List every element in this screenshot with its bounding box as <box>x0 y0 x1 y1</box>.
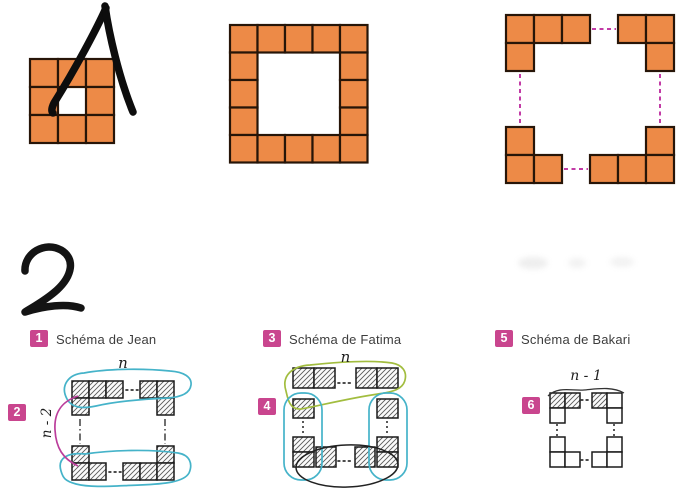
hatched-square <box>550 393 565 408</box>
schema-jean-title: Schéma de Jean <box>56 332 156 347</box>
hatched-square <box>140 463 157 480</box>
worksheet-page: 1 Schéma de Jean 2 n n - 2 3 Schéma de F… <box>0 0 682 492</box>
orange-square <box>58 115 86 143</box>
hatched-square <box>157 398 174 415</box>
jean-n-minus-2-label: n - 2 <box>39 396 55 450</box>
orange-square <box>313 25 341 53</box>
orange-square <box>618 155 646 183</box>
hatched-square <box>72 381 89 398</box>
orange-square <box>313 135 341 163</box>
handwritten-part-2 <box>25 247 81 312</box>
hatched-square <box>89 381 106 398</box>
hatched-square <box>377 399 398 418</box>
orange-square <box>534 15 562 43</box>
orange-square <box>86 59 114 87</box>
badge-3: 3 <box>263 330 281 347</box>
orange-square <box>646 155 674 183</box>
hatched-square <box>157 446 174 463</box>
orange-square <box>258 135 286 163</box>
orange-square <box>258 25 286 53</box>
hatched-square <box>316 447 336 467</box>
badge-2: 2 <box>8 404 26 421</box>
orange-square <box>86 115 114 143</box>
badge-4: 4 <box>258 398 276 415</box>
hatched-square <box>377 452 398 467</box>
schema-fatima-title: Schéma de Fatima <box>289 332 401 347</box>
orange-square <box>506 155 534 183</box>
hatched-square <box>140 381 157 398</box>
orange-square <box>562 15 590 43</box>
smudge <box>518 257 548 269</box>
orange-square <box>230 108 258 136</box>
orange-square <box>230 53 258 81</box>
hatched-square <box>377 368 398 388</box>
hatched-square <box>592 393 607 408</box>
hatched-square <box>356 368 377 388</box>
orange-square <box>506 127 534 155</box>
orange-square <box>285 135 313 163</box>
smudge <box>568 258 586 268</box>
orange-square <box>340 25 368 53</box>
orange-square <box>590 155 618 183</box>
badge-6: 6 <box>522 397 540 414</box>
badge-1: 1 <box>30 330 48 347</box>
hatched-square <box>355 447 375 467</box>
hatched-square <box>72 463 89 480</box>
orange-square <box>646 43 674 71</box>
hatched-square <box>293 368 314 388</box>
smudge <box>610 257 634 267</box>
orange-square <box>340 108 368 136</box>
worksheet-art <box>0 0 682 492</box>
hatched-square <box>106 381 123 398</box>
orange-square <box>340 80 368 108</box>
orange-square <box>30 115 58 143</box>
hatched-square <box>565 393 580 408</box>
orange-square <box>340 135 368 163</box>
hatched-square <box>314 368 335 388</box>
decor-layer <box>25 6 634 489</box>
schema-bakari-title: Schéma de Bakari <box>521 332 630 347</box>
orange-square <box>340 53 368 81</box>
badge-5: 5 <box>495 330 513 347</box>
orange-square <box>506 15 534 43</box>
plain-square <box>607 408 622 423</box>
orange-square <box>285 25 313 53</box>
hatched-square <box>293 437 314 452</box>
orange-square <box>230 25 258 53</box>
hatched-square <box>157 381 174 398</box>
orange-square <box>230 135 258 163</box>
plain-square <box>592 452 607 467</box>
orange-square <box>30 59 58 87</box>
orange-square <box>646 15 674 43</box>
orange-square <box>618 15 646 43</box>
jean-n-label: n <box>72 354 174 372</box>
plain-square <box>550 452 565 467</box>
orange-square <box>230 80 258 108</box>
orange-square <box>646 127 674 155</box>
hatched-square <box>123 463 140 480</box>
plain-square <box>607 452 622 467</box>
plain-square <box>550 408 565 423</box>
orange-square <box>86 87 114 115</box>
plain-square <box>607 393 622 408</box>
hatched-square <box>89 463 106 480</box>
plain-square <box>607 437 622 452</box>
plain-square <box>550 437 565 452</box>
plain-square <box>565 452 580 467</box>
hatched-square <box>157 463 174 480</box>
bakari-n-minus-1-label: n - 1 <box>548 368 624 384</box>
fatima-n-label: n <box>293 348 398 366</box>
orange-square <box>506 43 534 71</box>
orange-square <box>534 155 562 183</box>
